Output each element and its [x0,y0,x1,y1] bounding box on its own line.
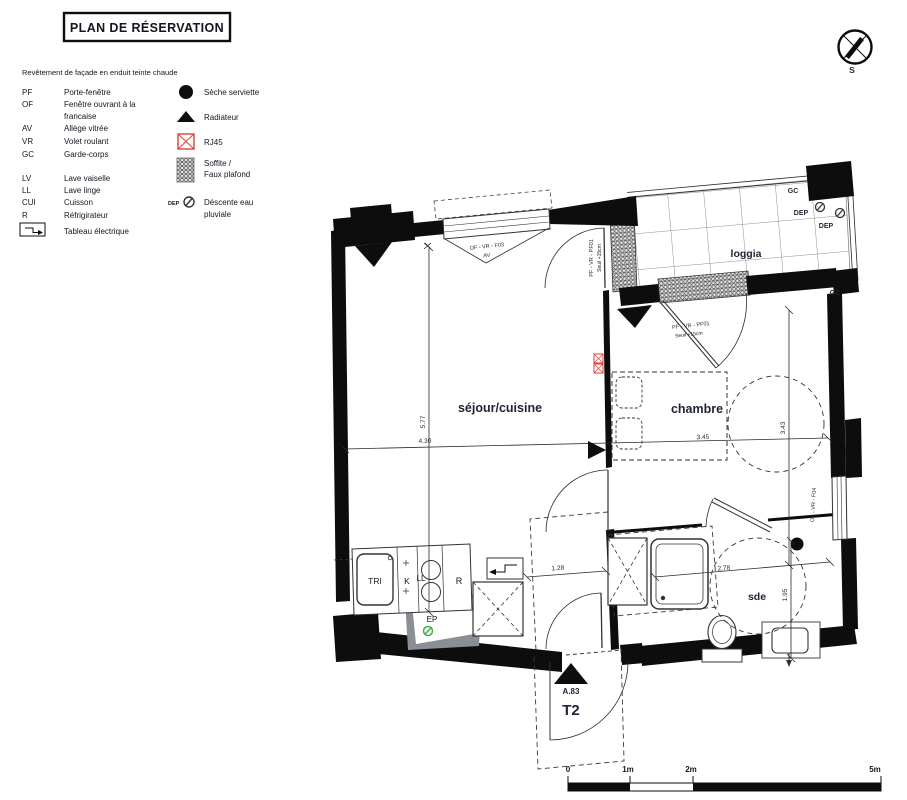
dim-chambre-w: 3.45 [697,434,710,441]
duct-sde [608,538,647,605]
abbr-av-label: Allège vitrée [64,124,109,133]
door-pf01b-seuil-label: Seuil +15cm [675,331,703,340]
dep2-label: DEP [819,223,834,230]
scale-2m: 2m [685,765,697,774]
turning-circle-chambre [728,376,824,472]
soffite-icon [177,158,194,182]
scale-0: 0 [566,765,571,774]
plan-de-reservation-sheet: PLAN DE RÉSERVATION Revêtement de façade… [0,0,907,800]
abbr-ll-label: Lave linge [64,186,101,195]
tableau-electrique-icon [20,223,45,236]
abbr-of-label2: francaise [64,112,97,121]
abbr-vr: VR [22,137,33,146]
radiateur-label: Radiateur [204,113,239,122]
abbr-av: AV [22,124,33,133]
seche-serviette-plan-icon [791,538,804,551]
window-f03-label: OF - VR - F03 [469,242,504,252]
descente-eau-icon: DEP [168,197,194,207]
abbr-cui-label: Cuisson [64,198,93,207]
window-f03-av-label: AV [483,253,491,260]
window-f04: OF - VR - F04 [810,476,847,540]
radiateur-chambre-icon [617,305,652,328]
bed [612,372,727,460]
dim-chambre-h: 3.43 [780,421,787,434]
room-label-sejour: séjour/cuisine [458,401,542,415]
abbr-vr-label: Volet roulant [64,137,109,146]
tri-label: TRI [368,576,382,586]
shower [651,539,708,609]
legend-symbols: Sèche serviette Radiateur RJ45 Soffite /… [168,85,260,219]
ll-label: LL [417,574,426,583]
compass-south-label: S [849,65,855,75]
door-pf01-label: PF - VR - PF01 [589,239,595,277]
scale-1m: 1m [622,765,634,774]
rj45-icon [178,134,194,149]
soffite-label2: Faux plafond [204,170,250,179]
ep-label: EP [427,615,438,624]
seche-serviette-label: Sèche serviette [204,88,260,97]
dim-sejour-w: 4.30 [419,438,432,445]
kitchen-counter: TRI K LL R [334,544,472,615]
rj45-plan-icon [594,354,603,373]
facade-note: Revêtement de façade en enduit teinte ch… [22,68,178,77]
room-label-loggia: loggia [731,248,762,260]
dim-sejour-h: 5.77 [420,415,427,428]
k-label: K [404,576,410,586]
scale-bar: 0 1m 2m 5m [566,765,881,791]
pillow-2 [616,418,642,449]
abbr-pf: PF [22,88,32,97]
radiateur-icon [177,111,195,122]
gc-top-label: GC [788,188,799,195]
floor-plan: EP OF - VR - F03 AV PF - VR - PF01 Seuil… [331,161,862,769]
soffite-label: Soffite / [204,159,232,168]
room-label-sde: sde [748,591,766,603]
abbr-pf-label: Porte-fenêtre [64,88,111,97]
door-pf01-seuil-label: Seuil +15cm [597,244,603,272]
abbr-r-label: Réfrigirateur [64,211,108,220]
door-chambre-loggia: PF - VR - PF01 Seuil +15cm [660,293,747,368]
room-label-chambre: chambre [671,402,723,416]
abbr-r: R [22,211,28,220]
dim-hall-w: 1.28 [551,565,564,573]
abbr-lv: LV [22,174,32,183]
dep1-label: DEP [794,210,809,217]
rj45-label: RJ45 [204,138,223,147]
scale-5m: 5m [869,765,881,774]
dim-sde-h: 1.95 [782,588,789,601]
tableau-electrique-plan-icon [487,558,523,579]
door-chambre [546,470,608,532]
gc-right-label: GC [830,290,841,297]
fridge-label: R [456,576,463,586]
hall-soffite-outline [530,512,608,651]
abbr-cui: CUI [22,198,36,207]
legend-abbreviations: PF Porte-fenêtre OF Fenêtre ouvrant à la… [20,88,136,236]
pillow-1 [616,377,642,408]
descente-eau-label2: pluviale [204,210,232,219]
dep-abbr: DEP [168,201,180,207]
unit-type: T2 [562,702,580,719]
abbr-gc-label: Garde-corps [64,150,108,159]
door-sde [706,498,772,532]
door-sejour-loggia: PF - VR - PF01 Seuil +15cm [545,228,605,288]
dim-arrow [588,441,606,459]
abbr-te-label: Tableau électrique [64,227,129,236]
abbr-gc: GC [22,150,34,159]
descente-eau-label: Déscente eau [204,198,253,207]
hob-burner-2 [422,583,441,602]
plan-canvas: PLAN DE RÉSERVATION Revêtement de façade… [0,0,907,800]
seche-serviette-icon [179,85,193,99]
window-f03: OF - VR - F03 AV [424,190,552,263]
page-title: PLAN DE RÉSERVATION [70,20,224,35]
abbr-of-label: Fenêtre ouvrant à la [64,100,136,109]
unit-ref: A.83 [563,687,580,696]
duct-kitchen [473,582,523,636]
abbr-lv-label: Lave vaiselle [64,174,111,183]
dim-sde-w: 2.78 [717,564,731,572]
abbr-of: OF [22,100,33,109]
compass: S [839,31,872,76]
title-block: PLAN DE RÉSERVATION [64,13,230,41]
radiateur-sejour-icon [355,242,392,267]
abbr-ll: LL [22,186,31,195]
